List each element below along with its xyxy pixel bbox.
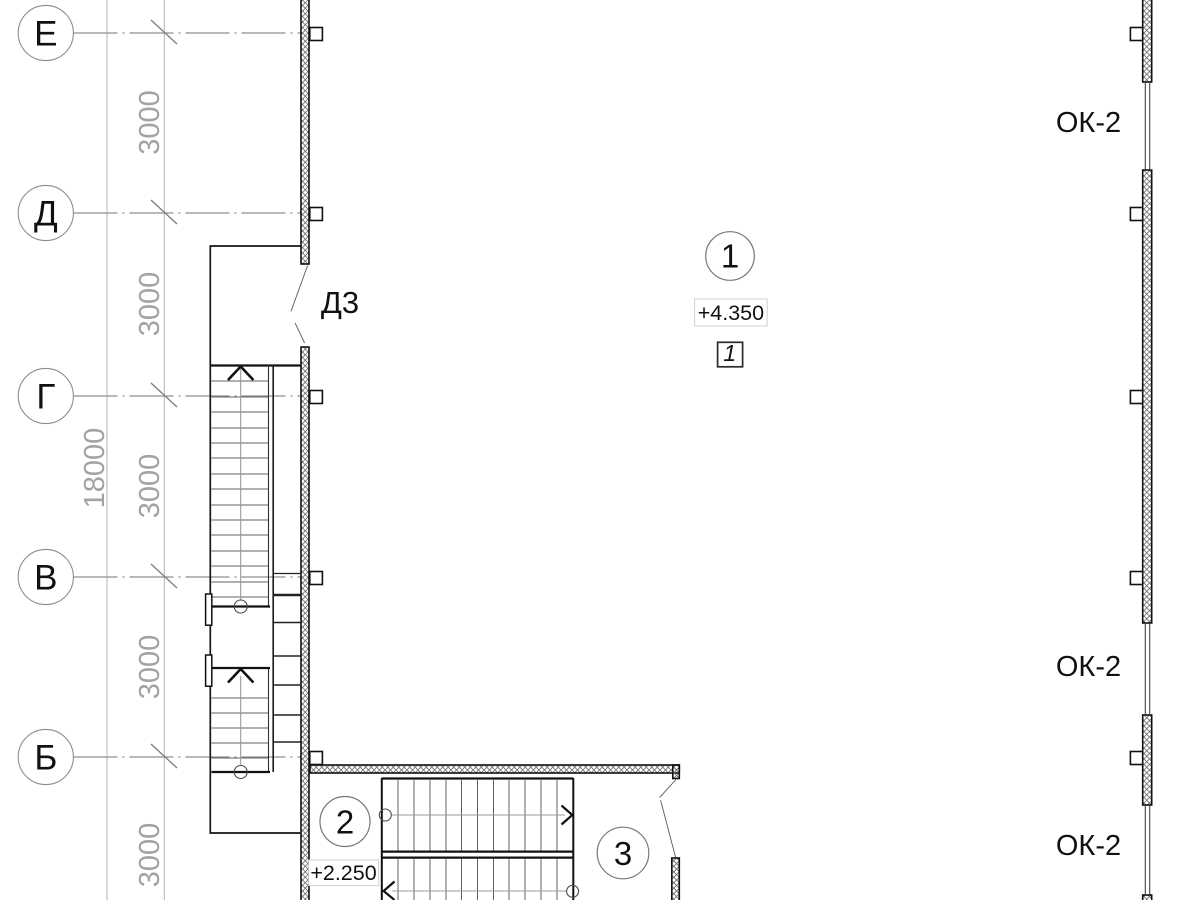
column-marker bbox=[1130, 572, 1142, 585]
column-marker bbox=[1130, 208, 1142, 221]
wall-pier bbox=[1143, 170, 1152, 623]
callout-bubbles: 1 2 3 bbox=[320, 232, 754, 879]
dim-3000-5: 3000 bbox=[134, 823, 166, 888]
dim-3000-3: 3000 bbox=[134, 454, 166, 519]
column-marker bbox=[1130, 28, 1142, 41]
wall-column-markers bbox=[310, 28, 1143, 765]
dim-3000-1: 3000 bbox=[134, 90, 166, 155]
wall-pier bbox=[1143, 715, 1152, 805]
dimension-texts: 3000 3000 3000 3000 3000 18000 bbox=[79, 90, 166, 887]
column-marker bbox=[1130, 752, 1142, 765]
axis-label-e: Е bbox=[34, 14, 57, 53]
window-labels: ОК-2 ОК-2 ОК-2 bbox=[1056, 107, 1121, 862]
section-reference: 1 bbox=[718, 340, 743, 367]
level-value-upper: +4.350 bbox=[698, 301, 764, 325]
column-marker bbox=[310, 752, 323, 765]
section-ref-number: 1 bbox=[723, 340, 736, 366]
door-break-line bbox=[661, 800, 676, 857]
callout-number-1: 1 bbox=[721, 238, 739, 275]
level-marks: +4.350 +2.250 bbox=[309, 299, 768, 886]
right-wall bbox=[1143, 0, 1152, 900]
stair-treads-flight1 bbox=[212, 381, 269, 597]
door-break-line bbox=[660, 780, 676, 798]
stair-left bbox=[206, 365, 301, 779]
stair-treads-run-lower bbox=[398, 859, 557, 900]
axis-label-b: Б bbox=[34, 738, 57, 777]
pilaster bbox=[206, 655, 212, 686]
axis-bubbles: Е Д Г В Б bbox=[18, 5, 73, 784]
window-label-3: ОК-2 bbox=[1056, 830, 1121, 862]
column-marker bbox=[1130, 391, 1142, 404]
dim-3000-2: 3000 bbox=[134, 272, 166, 337]
wall-left-upper bbox=[301, 0, 309, 264]
column-marker bbox=[310, 572, 323, 585]
axis-lines bbox=[74, 33, 302, 757]
column-marker bbox=[310, 28, 323, 41]
wall-pier bbox=[1143, 0, 1152, 82]
axis-label-v: В bbox=[34, 558, 57, 597]
wall-bottom-band bbox=[310, 765, 679, 773]
callout-number-3: 3 bbox=[614, 835, 632, 872]
wall-bottom-hook bbox=[673, 765, 680, 779]
stairwell-room-outline bbox=[210, 246, 301, 833]
column-marker bbox=[310, 391, 323, 404]
column-marker bbox=[310, 208, 323, 221]
callout-number-2: 2 bbox=[336, 803, 354, 840]
dim-3000-4: 3000 bbox=[134, 635, 166, 700]
door-break-line bbox=[295, 323, 305, 343]
door-label: Д3 bbox=[321, 285, 359, 320]
shaft-partitions bbox=[273, 574, 301, 743]
window-label-1: ОК-2 bbox=[1056, 107, 1121, 139]
level-value-lower: +2.250 bbox=[310, 861, 376, 885]
dim-18000: 18000 bbox=[79, 428, 111, 509]
pilaster bbox=[206, 594, 212, 625]
axis-label-g: Г bbox=[36, 377, 55, 416]
stair-bottom bbox=[379, 778, 578, 900]
floor-plan-drawing: Е Д Г В Б 3000 3000 3000 3000 3000 18000… bbox=[0, 0, 1200, 900]
wall-pier bbox=[1143, 895, 1152, 900]
door-break-line bbox=[291, 266, 308, 312]
stair-treads-flight2 bbox=[212, 698, 269, 758]
floor-plan-canvas: Е Д Г В Б 3000 3000 3000 3000 3000 18000… bbox=[0, 0, 1200, 900]
window-label-2: ОК-2 bbox=[1056, 651, 1121, 683]
axis-label-d: Д bbox=[34, 194, 58, 233]
door-jamb-wall bbox=[672, 858, 680, 900]
wall-left-lower bbox=[301, 347, 309, 900]
